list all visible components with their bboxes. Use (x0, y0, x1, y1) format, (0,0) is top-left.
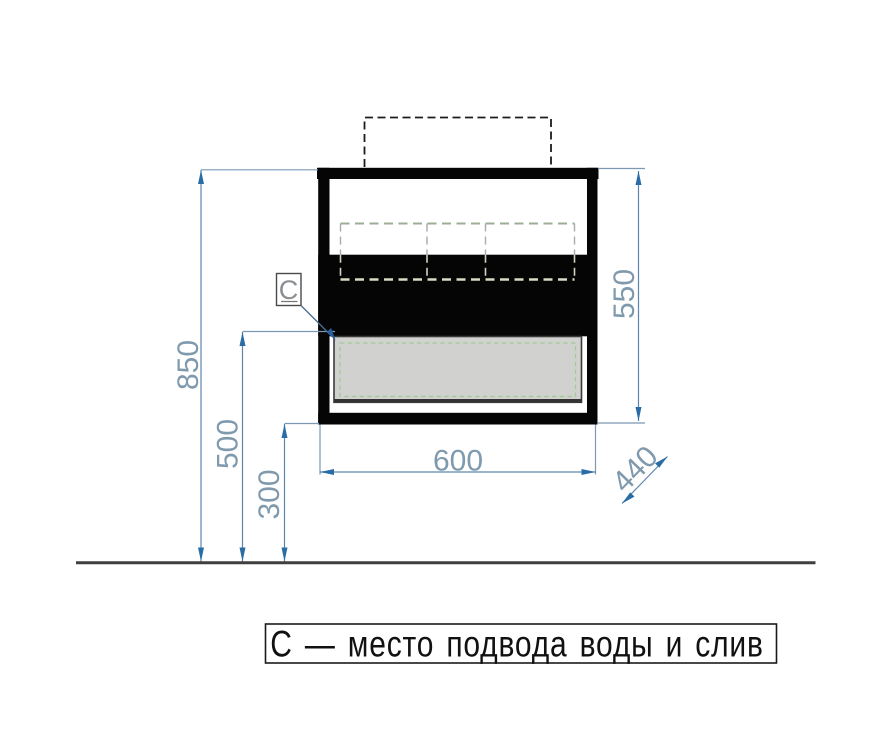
svg-text:500: 500 (211, 419, 244, 469)
svg-text:850: 850 (172, 340, 205, 390)
svg-text:C: C (279, 275, 299, 305)
svg-text:550: 550 (608, 269, 641, 319)
svg-text:300: 300 (253, 469, 286, 519)
svg-text:С — место подвода воды и слив: С — место подвода воды и слив (270, 625, 763, 665)
svg-text:600: 600 (433, 445, 483, 478)
